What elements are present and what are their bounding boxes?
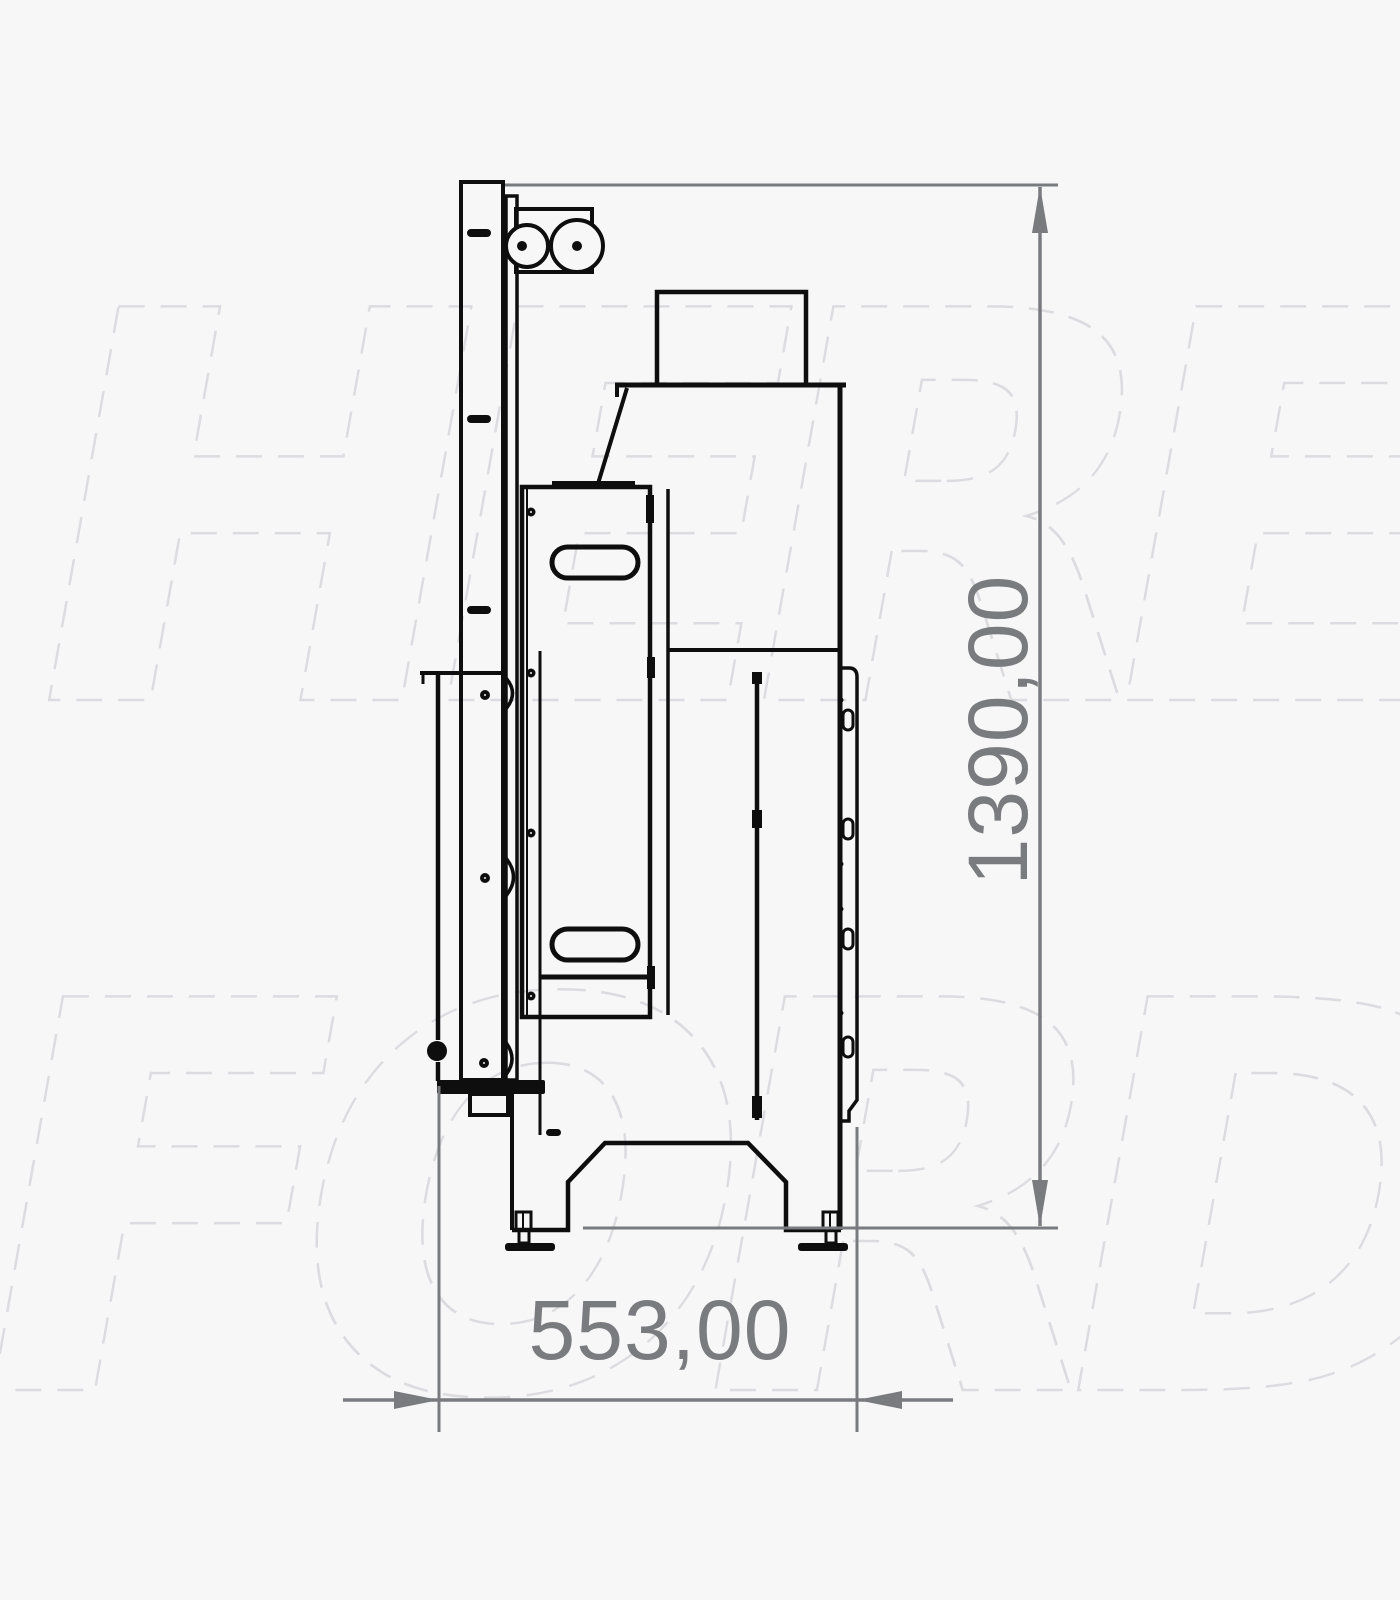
screw-pin [530, 995, 533, 998]
body-bottom-slot [546, 1129, 561, 1136]
door-bottom-step [470, 1094, 508, 1115]
door-bottom-bar [437, 1080, 545, 1094]
screw-pin [483, 1062, 486, 1065]
flange-weld-3 [839, 907, 844, 912]
screw-pin [530, 511, 533, 514]
foot-base [798, 1243, 848, 1251]
door-roller [427, 1041, 447, 1061]
screw-pin [530, 832, 533, 835]
rail-slot-3 [467, 606, 491, 614]
flange-weld-4 [839, 1011, 844, 1016]
foot-base [505, 1243, 555, 1251]
screw-pin [530, 672, 533, 675]
screw-pin [484, 877, 487, 880]
technical-drawing-canvas: HERE FORD [0, 0, 1400, 1600]
pulley-axle-small [517, 241, 527, 251]
watermark-line-2: FORD [0, 890, 1400, 1518]
width-dimension-value: 553,00 [529, 1283, 792, 1377]
pulley-axle-large [572, 241, 582, 251]
flange-weld-1 [839, 698, 844, 703]
rail-slot-2 [467, 415, 491, 423]
rail-slot-1 [467, 229, 491, 237]
height-dimension-value: 1390,00 [951, 575, 1045, 886]
flange-weld-2 [839, 862, 844, 867]
screw-pin [484, 694, 487, 697]
